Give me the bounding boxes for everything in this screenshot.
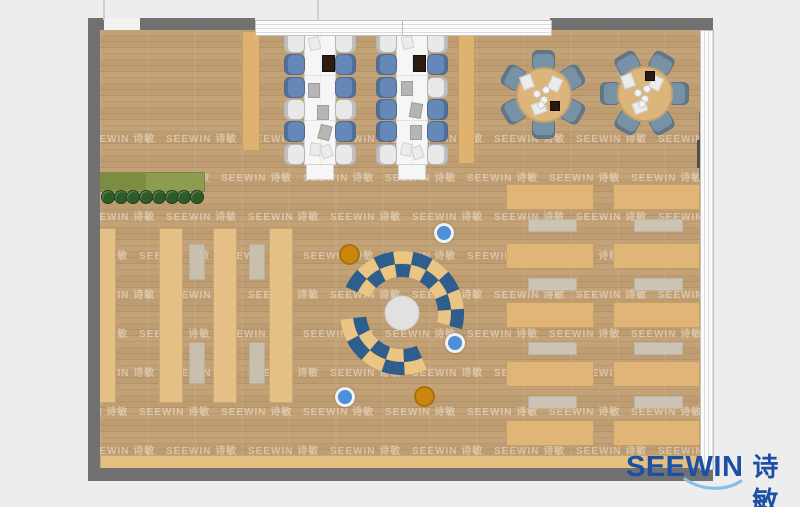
reading-table bbox=[506, 302, 594, 328]
office-chair bbox=[284, 54, 305, 75]
floor-watermark: SEEWIN 诗敏 bbox=[549, 169, 620, 184]
stool-blue bbox=[434, 223, 454, 243]
table-item-tablet bbox=[645, 71, 655, 81]
wall-segment bbox=[88, 18, 104, 30]
reading-table bbox=[613, 420, 700, 446]
table-item-plate bbox=[537, 101, 545, 109]
floor-watermark: SEEWIN 诗敏 bbox=[412, 208, 483, 223]
reading-table bbox=[613, 302, 700, 328]
wall-segment bbox=[88, 468, 713, 481]
office-chair bbox=[376, 77, 397, 98]
logo-swoosh-icon bbox=[682, 477, 744, 491]
desk-item-tablet bbox=[409, 102, 423, 119]
office-chair bbox=[427, 54, 448, 75]
floor-watermark: SEEWIN 诗敏 bbox=[100, 208, 155, 223]
bookshelf-row bbox=[269, 228, 293, 403]
office-chair bbox=[284, 144, 305, 165]
reading-bench bbox=[528, 342, 577, 355]
lounge-center-table bbox=[385, 296, 419, 330]
floor-watermark: SEEWIN 诗敏 bbox=[631, 169, 700, 184]
desk-end-table bbox=[398, 164, 426, 180]
stool-blue bbox=[335, 387, 355, 407]
window-mullion bbox=[402, 21, 403, 35]
reading-bench bbox=[634, 342, 683, 355]
benching-desk bbox=[396, 30, 428, 165]
desk-item-tablet bbox=[317, 124, 332, 142]
desk-item-tablet bbox=[401, 81, 413, 96]
table-item-plate bbox=[542, 86, 550, 94]
office-chair bbox=[376, 121, 397, 142]
stool-blue-seat bbox=[448, 336, 462, 350]
desk-item-tablet bbox=[317, 105, 329, 120]
aisle-study-table bbox=[189, 244, 205, 280]
desk-item-paper bbox=[319, 144, 334, 160]
desk-item-tablet bbox=[410, 125, 422, 140]
floor-watermark: SEEWIN 诗敏 bbox=[248, 208, 319, 223]
stool-blue-seat bbox=[437, 226, 451, 240]
wall-segment bbox=[140, 18, 255, 30]
table-item-plate bbox=[638, 100, 646, 108]
benching-desk bbox=[304, 30, 336, 165]
floor-watermark: SEEWIN 诗敏 bbox=[166, 208, 237, 223]
reading-bench bbox=[634, 278, 683, 291]
reading-table bbox=[613, 243, 700, 269]
brand-logo: SEEWIN 诗敏 bbox=[626, 450, 800, 502]
office-chair bbox=[335, 54, 356, 75]
office-chair bbox=[335, 144, 356, 165]
desk-item-paper bbox=[308, 36, 321, 51]
wall-segment bbox=[88, 18, 100, 481]
plant bbox=[190, 190, 204, 204]
office-chair bbox=[284, 99, 305, 120]
brand-logo-text-zh: 诗敏 bbox=[752, 450, 800, 507]
desk-item-laptop bbox=[322, 55, 335, 72]
office-chair bbox=[427, 121, 448, 142]
office-chair bbox=[335, 99, 356, 120]
office-chair bbox=[376, 144, 397, 165]
table-item-tablet bbox=[550, 101, 560, 111]
reading-bench bbox=[634, 219, 683, 232]
wood-partition bbox=[242, 31, 260, 151]
office-chair bbox=[335, 121, 356, 142]
aisle-study-table bbox=[249, 342, 265, 384]
lounge-sofa-arc-segment bbox=[449, 309, 464, 329]
bookshelf-row bbox=[159, 228, 183, 403]
door-opening bbox=[104, 18, 140, 30]
reading-table bbox=[506, 420, 594, 446]
lounge-sofa-arc-segment bbox=[437, 310, 451, 326]
stool-blue-seat bbox=[338, 390, 352, 404]
stool-blue bbox=[445, 333, 465, 353]
plant bbox=[152, 190, 166, 204]
floor-watermark: SEEWIN 诗敏 bbox=[467, 169, 538, 184]
reading-table bbox=[506, 361, 594, 387]
floor-plan-canvas: SEEWIN 诗敏SEEWIN 诗敏SEEWIN 诗敏SEEWIN 诗敏SEEW… bbox=[0, 0, 800, 507]
office-chair bbox=[335, 77, 356, 98]
office-chair bbox=[284, 77, 305, 98]
desk-end-table bbox=[306, 164, 334, 180]
reading-table bbox=[506, 184, 594, 210]
wall-reference-line bbox=[103, 0, 105, 20]
window-wall bbox=[700, 30, 714, 470]
floor-watermark: SEEWIN 诗敏 bbox=[100, 403, 128, 418]
lounge-sofa-arc-segment bbox=[395, 264, 411, 278]
office-chair bbox=[427, 77, 448, 98]
wall-segment bbox=[550, 18, 713, 30]
planter-bench-shade bbox=[100, 172, 146, 190]
office-chair bbox=[284, 121, 305, 142]
wall-reference-line bbox=[317, 0, 319, 21]
lounge-sofa-arc-segment bbox=[393, 251, 413, 265]
desk-item-tablet bbox=[308, 83, 320, 98]
floor-watermark: SEEWIN 诗敏 bbox=[330, 208, 401, 223]
logo-swoosh-path bbox=[685, 479, 741, 488]
reading-bench bbox=[634, 396, 683, 409]
bookshelf-row bbox=[213, 228, 237, 403]
office-chair bbox=[376, 99, 397, 120]
stool-orange bbox=[414, 386, 435, 407]
office-chair bbox=[376, 54, 397, 75]
reading-bench bbox=[528, 278, 577, 291]
reading-bench bbox=[528, 396, 577, 409]
floor-watermark: SEEWIN 诗敏 bbox=[100, 130, 155, 145]
stool-orange bbox=[339, 244, 360, 265]
desk-item-laptop bbox=[413, 55, 426, 72]
floor-watermark: SEEWIN 诗敏 bbox=[576, 130, 647, 145]
floor-watermark: SEEWIN 诗敏 bbox=[139, 403, 210, 418]
floor-watermark: SEEWIN 诗敏 bbox=[221, 169, 292, 184]
window-wall bbox=[255, 20, 552, 36]
wood-partition bbox=[458, 31, 475, 164]
office-chair bbox=[427, 144, 448, 165]
plant bbox=[101, 190, 115, 204]
table-item-plate bbox=[643, 85, 651, 93]
reading-bench bbox=[528, 219, 577, 232]
reading-table bbox=[506, 243, 594, 269]
floor-watermark: SEEWIN 诗敏 bbox=[166, 130, 237, 145]
aisle-study-table bbox=[189, 342, 205, 384]
floor-watermark: SEEWIN 诗敏 bbox=[221, 403, 292, 418]
office-chair bbox=[427, 99, 448, 120]
aisle-study-table bbox=[249, 244, 265, 280]
reading-table bbox=[613, 184, 700, 210]
reading-table bbox=[613, 361, 700, 387]
